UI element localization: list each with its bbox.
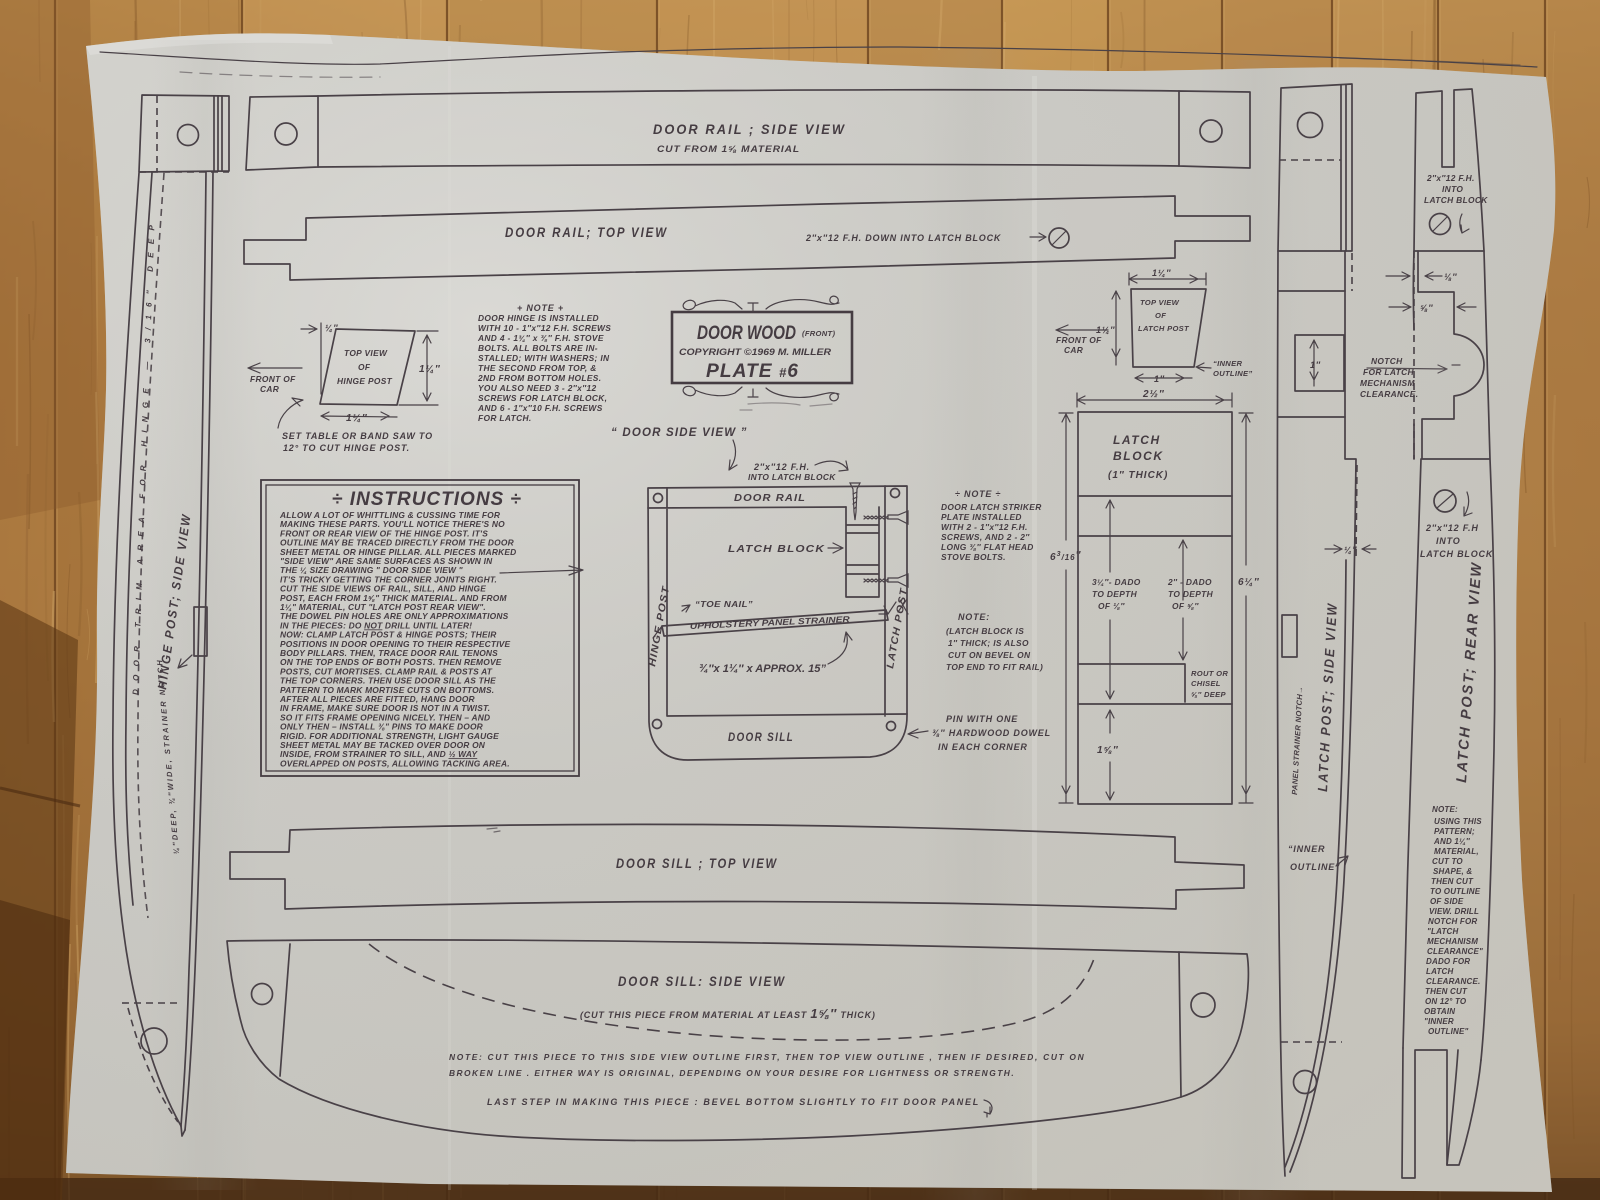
svg-text:DOOR RAIL ; SIDE VIEW: DOOR RAIL ; SIDE VIEW — [653, 122, 846, 137]
svg-text:NOTCH: NOTCH — [1371, 356, 1403, 366]
svg-text:PATTERN;: PATTERN; — [1434, 827, 1475, 836]
svg-text:"INNER: "INNER — [1424, 1017, 1454, 1026]
svg-text:DOOR RAIL: DOOR RAIL — [734, 493, 806, 504]
svg-text:DOOR SILL ; TOP VIEW: DOOR SILL ; TOP VIEW — [616, 856, 778, 871]
svg-text:NOTE:: NOTE: — [1432, 805, 1458, 814]
svg-text:“INNER: “INNER — [1213, 359, 1242, 368]
svg-text:MATERIAL,: MATERIAL, — [1434, 847, 1479, 856]
svg-text:⅝″: ⅝″ — [1420, 303, 1433, 313]
svg-text:2″x″12 F.H: 2″x″12 F.H — [1425, 523, 1479, 533]
svg-text:THEN CUT: THEN CUT — [1431, 877, 1474, 886]
svg-text:1″: 1″ — [1154, 374, 1165, 384]
svg-text:THE SECOND FROM TOP, &: THE SECOND FROM TOP, & — [478, 363, 597, 373]
svg-text:CLEARANCE.: CLEARANCE. — [1360, 389, 1418, 399]
svg-text:CUT ON BEVEL ON: CUT ON BEVEL ON — [948, 650, 1031, 660]
svg-text:2″ - DADO: 2″ - DADO — [1167, 577, 1212, 587]
svg-text:TOP VIEW: TOP VIEW — [344, 348, 388, 358]
svg-text:VIEW. DRILL: VIEW. DRILL — [1429, 907, 1479, 916]
svg-text:(LATCH BLOCK IS: (LATCH BLOCK IS — [946, 626, 1024, 636]
svg-text:AND 4 - 1¾″ x ⅜″ F.H. STO: AND 4 - 1¾″ x ⅜″ F.H. STOVE — [477, 333, 604, 343]
svg-text:¾″x 1¼″ x APPROX. 15”: ¾″x 1¼″ x APPROX. 15” — [699, 663, 826, 675]
svg-text:LATCH BLOCK: LATCH BLOCK — [728, 544, 825, 555]
svg-text:INTO: INTO — [1442, 184, 1463, 194]
svg-text:1″: 1″ — [1310, 360, 1321, 370]
svg-text:CAR: CAR — [1064, 345, 1083, 355]
svg-text:⅛″: ⅛″ — [1444, 272, 1457, 282]
svg-text:OVERLAPPED ON POSTS, ALLOWING: OVERLAPPED ON POSTS, ALLOWING TACKING AR… — [280, 758, 510, 768]
svg-text:OF ⅛″: OF ⅛″ — [1098, 601, 1125, 611]
svg-text:PIN WITH ONE: PIN WITH ONE — [946, 714, 1018, 724]
svg-text:DOOR RAIL; TOP VIEW: DOOR RAIL; TOP VIEW — [505, 225, 668, 240]
svg-text:2″x″12 F.H.: 2″x″12 F.H. — [753, 462, 810, 472]
svg-text:1¼″: 1¼″ — [419, 364, 441, 375]
svg-text:LATCH: LATCH — [1426, 967, 1454, 976]
svg-text:DOOR LATCH STRIKER: DOOR LATCH STRIKER — [941, 502, 1042, 512]
svg-text:MECHANISM: MECHANISM — [1360, 378, 1415, 388]
svg-text:÷ NOTE ÷: ÷ NOTE ÷ — [955, 489, 1001, 499]
svg-text:FOR LATCH.: FOR LATCH. — [478, 413, 532, 423]
svg-text:OF: OF — [1155, 311, 1166, 320]
svg-text:OF ⅝″: OF ⅝″ — [1172, 601, 1199, 611]
svg-text:PLATE #6: PLATE #6 — [706, 361, 799, 382]
svg-text:LATCH POST: LATCH POST — [1138, 324, 1190, 333]
svg-text:OUTLINE”: OUTLINE” — [1290, 862, 1340, 872]
svg-text:1¼″: 1¼″ — [346, 413, 368, 424]
svg-text:CLEARANCE.: CLEARANCE. — [1426, 977, 1480, 986]
svg-text:AND 6 - 1″x″10 F.H. SCREWS: AND 6 - 1″x″10 F.H. SCREWS — [477, 403, 603, 413]
svg-text:1¼″: 1¼″ — [1152, 268, 1171, 278]
svg-text:HINGE POST: HINGE POST — [337, 376, 393, 386]
svg-text:AND 1¼″: AND 1¼″ — [1433, 837, 1471, 846]
svg-text:TO DEPTH: TO DEPTH — [1092, 589, 1138, 599]
svg-text:TOP VIEW: TOP VIEW — [1140, 298, 1180, 307]
svg-text:DOOR HINGE IS INSTALLED: DOOR HINGE IS INSTALLED — [478, 313, 599, 323]
svg-text:INTO LATCH BLOCK: INTO LATCH BLOCK — [748, 472, 836, 482]
svg-text:2″x″12 F.H. DOWN INTO LATC: 2″x″12 F.H. DOWN INTO LATCH BLOCK — [805, 233, 1002, 243]
svg-text:SCREWS, AND 2 - 2″: SCREWS, AND 2 - 2″ — [941, 532, 1030, 542]
svg-text:DOOR SILL: SIDE VIEW: DOOR SILL: SIDE VIEW — [618, 974, 786, 989]
svg-text:SHAPE, &: SHAPE, & — [1433, 867, 1472, 876]
svg-text:LATCH: LATCH — [1113, 433, 1161, 447]
svg-text:2ND FROM BOTTOM HOLES.: 2ND FROM BOTTOM HOLES. — [477, 373, 601, 383]
svg-text:¼″: ¼″ — [1344, 545, 1357, 555]
svg-text:LATCH BLOCK: LATCH BLOCK — [1424, 195, 1488, 205]
svg-text:CUT TO: CUT TO — [1432, 857, 1463, 866]
svg-text:OF: OF — [358, 362, 371, 372]
svg-text:MECHANISM: MECHANISM — [1427, 937, 1478, 946]
svg-text:2″x″12 F.H.: 2″x″12 F.H. — [1426, 173, 1475, 183]
svg-text:ROUT OR: ROUT OR — [1191, 669, 1228, 678]
svg-text:BOLTS. ALL BOLTS ARE IN-: BOLTS. ALL BOLTS ARE IN- — [478, 343, 598, 353]
svg-text:OBTAIN: OBTAIN — [1424, 1007, 1455, 1016]
svg-text:IN EACH CORNER: IN EACH CORNER — [938, 742, 1028, 752]
svg-text:PLATE INSTALLED: PLATE INSTALLED — [941, 512, 1022, 522]
svg-text:12° TO CUT HINGE POST.: 12° TO CUT HINGE POST. — [283, 443, 410, 453]
svg-text:3¼″- DADO: 3¼″- DADO — [1092, 577, 1141, 587]
svg-text:LAST STEP IN MAKING THIS P: LAST STEP IN MAKING THIS PIECE : BEVEL B… — [487, 1097, 979, 1107]
svg-text:SCREWS FOR LATCH BLOCK,: SCREWS FOR LATCH BLOCK, — [478, 393, 607, 403]
svg-text:÷ INSTRUCTIONS ÷: ÷ INSTRUCTIONS ÷ — [332, 489, 522, 510]
svg-text:⅜″ HARDWOOD DOWEL: ⅜″ HARDWOOD DOWEL — [932, 728, 1051, 738]
svg-text:CAR: CAR — [260, 384, 279, 394]
svg-text:“ DOOR SIDE VIEW ”: “ DOOR SIDE VIEW ” — [611, 427, 748, 439]
svg-text:DOOR SILL: DOOR SILL — [728, 730, 794, 744]
svg-text:1⅝″: 1⅝″ — [1097, 745, 1119, 756]
svg-text:WITH 2 - 1″x″12 F.H.: WITH 2 - 1″x″12 F.H. — [941, 522, 1028, 532]
svg-text:6¼″: 6¼″ — [1238, 577, 1260, 588]
svg-text:COPYRIGHT ©1969 M. MILLER: COPYRIGHT ©1969 M. MILLER — [679, 347, 831, 358]
svg-text:DADO FOR: DADO FOR — [1426, 957, 1470, 966]
svg-text:STOVE BOLTS.: STOVE BOLTS. — [941, 552, 1006, 562]
svg-text:2½″: 2½″ — [1142, 389, 1165, 400]
svg-text:BLOCK: BLOCK — [1113, 449, 1164, 463]
svg-text:CUT FROM 1⅝ MATERIAL: CUT FROM 1⅝ MATERIAL — [657, 144, 800, 154]
svg-text:⅝″ DEEP: ⅝″ DEEP — [1191, 690, 1226, 699]
svg-text:NOTCH FOR: NOTCH FOR — [1428, 917, 1477, 926]
svg-text:NOTE:: NOTE: — [958, 612, 990, 622]
svg-text:“TOE NAIL”: “TOE NAIL” — [695, 599, 754, 609]
svg-text:DOOR WOOD: DOOR WOOD — [697, 323, 796, 344]
svg-text:STALLED; WITH WASHERS; IN: STALLED; WITH WASHERS; IN — [478, 353, 610, 363]
svg-text:INTO: INTO — [1436, 536, 1461, 546]
svg-text:TOP END TO FIT RAIL): TOP END TO FIT RAIL) — [946, 662, 1043, 672]
svg-text:WITH 10 - 1″x″12 F.H. SCREWS: WITH 10 - 1″x″12 F.H. SCREWS — [478, 323, 611, 333]
svg-text:+ NOTE +: + NOTE + — [517, 303, 564, 313]
svg-text:TO OUTLINE: TO OUTLINE — [1430, 887, 1481, 896]
svg-text:YOU ALSO NEED 3 - 2″x″12: YOU ALSO NEED 3 - 2″x″12 — [478, 383, 597, 393]
svg-text:¼″: ¼″ — [325, 323, 338, 333]
svg-text:OF SIDE: OF SIDE — [1430, 897, 1464, 906]
svg-text:LATCH BLOCK: LATCH BLOCK — [1420, 549, 1494, 559]
svg-text:CLEARANCE": CLEARANCE" — [1427, 947, 1483, 956]
svg-text:ON 12° TO: ON 12° TO — [1425, 997, 1467, 1006]
svg-text:"LATCH: "LATCH — [1427, 927, 1459, 936]
svg-text:THEN CUT: THEN CUT — [1425, 987, 1468, 996]
svg-text:LONG ⅜″ FLAT HEAD: LONG ⅜″ FLAT HEAD — [941, 542, 1034, 552]
svg-text:1″ THICK; IS ALSO: 1″ THICK; IS ALSO — [948, 638, 1029, 648]
svg-text:TO DEPTH: TO DEPTH — [1168, 589, 1214, 599]
svg-text:SET TABLE OR BAND SAW TO: SET TABLE OR BAND SAW TO — [282, 431, 433, 441]
svg-text:FRONT OF: FRONT OF — [1056, 335, 1102, 345]
svg-text:“INNER: “INNER — [1288, 844, 1325, 854]
svg-text:USING THIS: USING THIS — [1434, 817, 1482, 826]
svg-text:OUTLINE”: OUTLINE” — [1213, 369, 1253, 378]
svg-text:CHISEL: CHISEL — [1191, 679, 1221, 688]
svg-text:OUTLINE": OUTLINE" — [1428, 1027, 1469, 1036]
svg-text:(1″ THICK): (1″ THICK) — [1108, 470, 1168, 481]
svg-text:(FRONT): (FRONT) — [802, 329, 835, 338]
svg-text:NOTE: CUT THIS PIECE TO THIS: NOTE: CUT THIS PIECE TO THIS SIDE VIEW O… — [449, 1052, 1085, 1062]
svg-text:FRONT OF: FRONT OF — [250, 374, 296, 384]
